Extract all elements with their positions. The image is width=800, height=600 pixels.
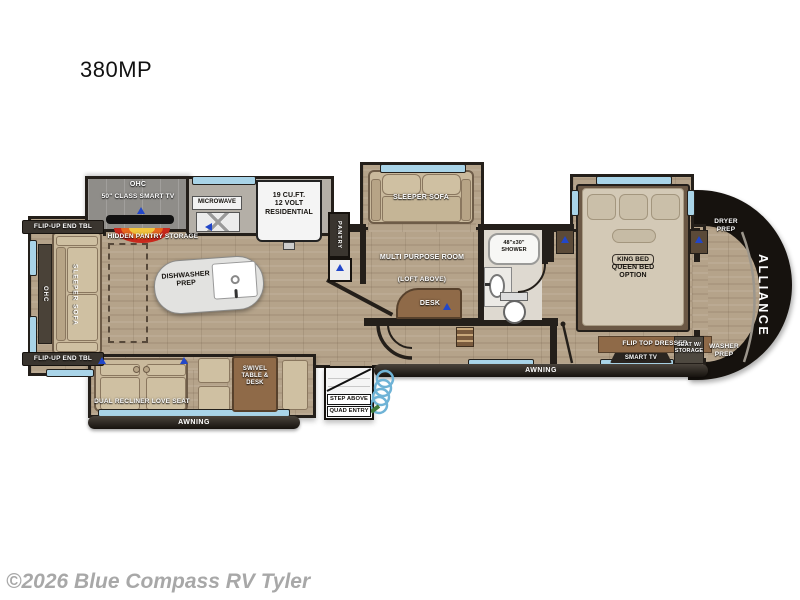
bedroom-tv-label: SMART TV [610,355,672,362]
marker-icon [336,264,344,271]
window-rear-top [29,240,37,276]
marker-icon [561,236,569,243]
swivel-table-label: SWIVEL TABLE & DESK [232,366,278,387]
awning-bar-left: AWNING [88,416,300,429]
dinette-seat-1 [198,358,230,383]
loft-ladder-icon [456,327,474,347]
seat-with-storage-label: SEAT W/ STORAGE [672,342,706,355]
watermark: ©2026 Blue Compass RV Tyler [6,570,310,594]
mpr-loft-label: (LOFT ABOVE) [372,276,472,284]
island-sink [212,261,258,300]
cupholder-icon [133,366,140,373]
window-bed-slide [596,176,672,185]
water-hose-icon [373,389,389,405]
window-bed-left [571,190,579,216]
mpr-sofa-label: SLEEPER SOFA [378,194,464,202]
brand-logo: ALLIANCE [754,244,772,348]
wall-bed-stub [550,318,557,364]
wall-bed-divider [548,232,554,262]
awning-left-label: AWNING [178,419,210,426]
marker-icon [98,357,106,364]
awning-right-label: AWNING [525,367,557,374]
ent-ohc-label: OHC [96,181,180,189]
step-above-label: STEP ABOVE [327,396,371,403]
quad-entry-label: QUAD ENTRY [327,408,371,415]
awning-bar-right: AWNING [374,364,708,377]
tv-bar [106,215,174,224]
bed-bolster [612,229,656,243]
marker-icon [205,223,212,231]
window-bed-right [687,190,695,216]
dinette-seat-3 [282,360,308,410]
window-mpr-slide [380,164,466,173]
microwave-label: MICROWAVE [192,199,242,206]
range-cooktop [196,212,240,232]
marker-icon [695,236,703,243]
window-rear-bottom [29,316,37,354]
queen-option-label: QUEEN BED OPTION [576,264,690,281]
washer-prep-label: WASHER PREP [702,343,746,358]
rear-ohc-label: OHC [38,244,52,344]
marker-icon [180,357,188,364]
shower-label: 48"x30" SHOWER [488,240,540,253]
window-rear-bottom-wall [46,369,94,377]
water-hose-icon [375,380,391,396]
bed-pillow-3 [651,194,680,220]
marker-icon [443,303,451,310]
mpr-room-label: MULTI PURPOSE ROOM [366,254,478,262]
dryer-prep-label: DRYER PREP [704,218,748,233]
flip-up-table-bottom-label: FLIP-UP END TBL [22,355,104,363]
cupholder-icon [143,366,150,373]
floorplan-page: { "page": { "title": "380MP", "watermark… [0,0,800,600]
refrigerator-label: 19 CU.FT. 12 VOLT RESIDENTIAL [256,192,322,217]
marker-icon [137,207,145,214]
dual-recliner-label: DUAL RECLINER LOVE SEAT [86,398,198,406]
ent-tv-label: 50" CLASS SMART TV [88,193,188,201]
bed-pillow-1 [587,194,616,220]
option-dashed-outline [108,243,148,343]
pantry-label: PANTRY [328,212,350,258]
bed-pillow-2 [619,194,648,220]
toilet-bowl [503,300,526,324]
page-title: 380MP [80,57,152,83]
window-kitchen [192,176,256,185]
refrigerator-handle [283,242,295,250]
hidden-pantry-label: HIDDEN PANTRY STORAGE [94,233,212,241]
rear-sofa-label: SLEEPER SOFA [68,250,82,340]
flip-up-table-top-label: FLIP-UP END TBL [22,223,104,231]
